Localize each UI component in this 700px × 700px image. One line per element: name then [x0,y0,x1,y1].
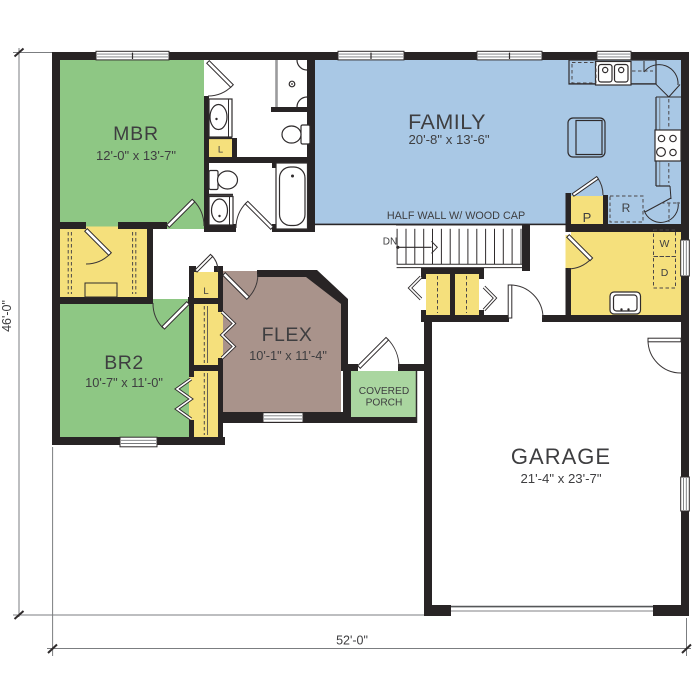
svg-text:D: D [661,267,669,279]
svg-text:L: L [203,286,208,297]
svg-text:FLEX: FLEX [262,324,313,346]
svg-text:PORCH: PORCH [366,398,403,409]
svg-text:20'-8" x 13'-6": 20'-8" x 13'-6" [408,132,489,147]
svg-text:GARAGE: GARAGE [511,444,611,469]
svg-text:R: R [622,201,631,215]
svg-text:HALF WALL W/ WOOD CAP: HALF WALL W/ WOOD CAP [387,210,525,222]
svg-text:46'-0": 46'-0" [0,300,14,332]
svg-text:COVERED: COVERED [359,386,409,397]
svg-text:BR2: BR2 [104,352,143,374]
svg-text:FAMILY: FAMILY [408,110,486,134]
svg-text:MBR: MBR [113,123,159,145]
svg-text:10'-7" x 11'-0": 10'-7" x 11'-0" [85,375,163,390]
svg-text:L: L [218,145,223,156]
svg-text:52'-0": 52'-0" [336,634,368,648]
svg-text:DN: DN [383,237,397,248]
svg-text:W: W [660,238,670,250]
svg-text:P: P [583,210,592,225]
svg-text:12'-0" x 13'-7": 12'-0" x 13'-7" [96,148,176,163]
svg-text:21'-4" x 23'-7": 21'-4" x 23'-7" [520,471,601,486]
svg-text:10'-1" x 11'-4": 10'-1" x 11'-4" [249,348,327,363]
